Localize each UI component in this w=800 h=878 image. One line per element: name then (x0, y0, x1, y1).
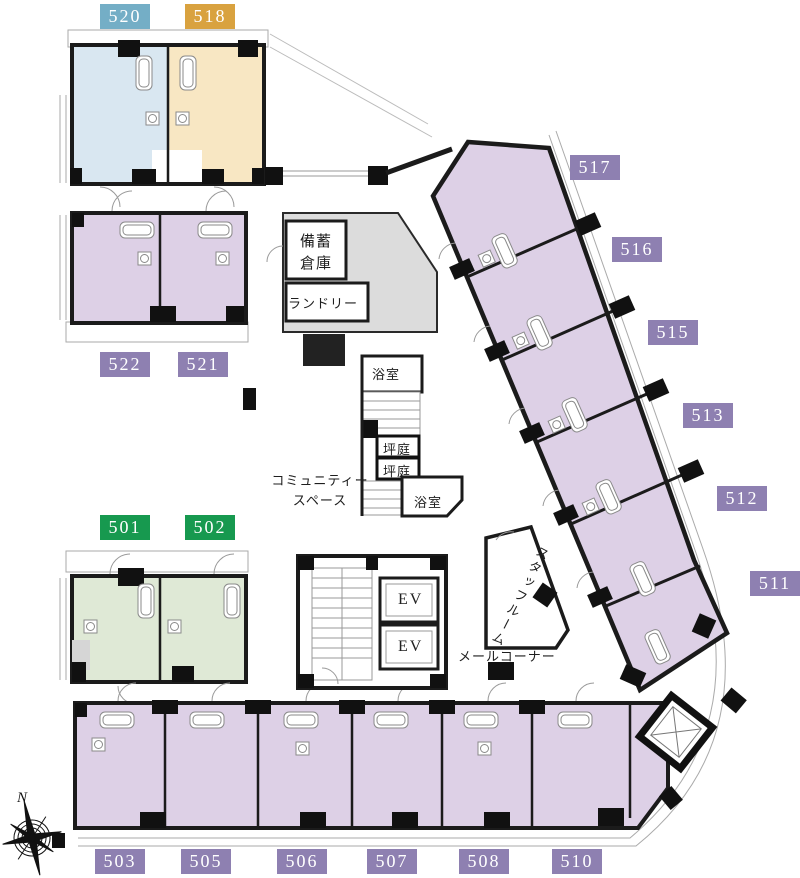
storage-label-line1: 備蓄 (300, 230, 332, 251)
block-520-518 (70, 40, 264, 207)
badge-515: 515 (648, 320, 698, 345)
badge-520: 520 (100, 4, 150, 29)
badge-510: 510 (552, 849, 602, 874)
badge-521: 521 (178, 352, 228, 377)
community-space-label-line1: コミュニティー (262, 470, 378, 489)
badge-506: 506 (277, 849, 327, 874)
badge-501: 501 (100, 515, 150, 540)
floorplan-canvas: 520 518 522 521 501 502 517 516 515 513 … (0, 0, 800, 878)
badge-507: 507 (367, 849, 417, 874)
block-503-510 (75, 683, 668, 828)
badge-503: 503 (95, 849, 145, 874)
top-corridor-wall (265, 149, 452, 185)
badge-512: 512 (717, 486, 767, 511)
bath-label-1: 浴室 (372, 364, 400, 383)
community-space-label-line2: スペース (262, 490, 378, 509)
mail-corner-label: メールコーナー (458, 646, 556, 665)
badge-508: 508 (459, 849, 509, 874)
badge-517: 517 (570, 155, 620, 180)
north-label: N (17, 790, 27, 807)
laundry-label: ランドリー (288, 293, 358, 312)
block-522-521 (72, 191, 246, 323)
badge-513: 513 (683, 403, 733, 428)
entry-vestibule (152, 150, 202, 182)
badge-502: 502 (185, 515, 235, 540)
badge-511: 511 (750, 571, 800, 596)
courtyard-label-1: 坪庭 (383, 439, 411, 458)
badge-516: 516 (612, 237, 662, 262)
stair-elevator-core (298, 556, 446, 688)
badge-518: 518 (185, 4, 235, 29)
badge-522: 522 (100, 352, 150, 377)
elevator-1-label: EV (398, 591, 423, 609)
elevator-2-label: EV (398, 638, 423, 656)
block-501-502 (72, 554, 246, 704)
storage-label-line2: 倉庫 (300, 252, 332, 273)
bath-label-2: 浴室 (414, 492, 442, 511)
courtyard-label-2: 坪庭 (383, 461, 411, 480)
badge-505: 505 (181, 849, 231, 874)
